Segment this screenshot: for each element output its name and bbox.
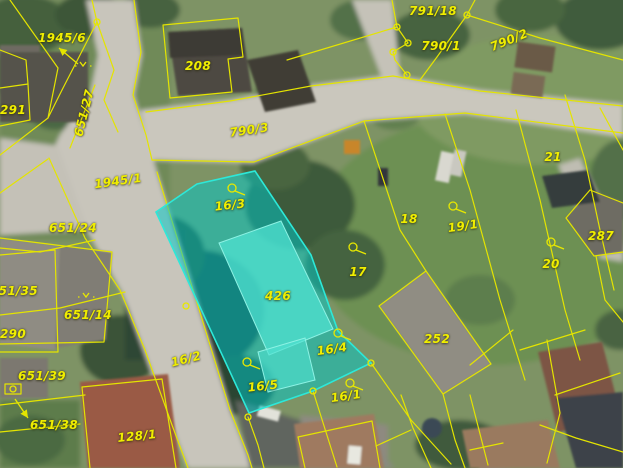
cadastral-map[interactable]: 1945/6208791/18790/1790/2291651/27790/31… — [0, 0, 623, 468]
map-canvas — [0, 0, 623, 468]
